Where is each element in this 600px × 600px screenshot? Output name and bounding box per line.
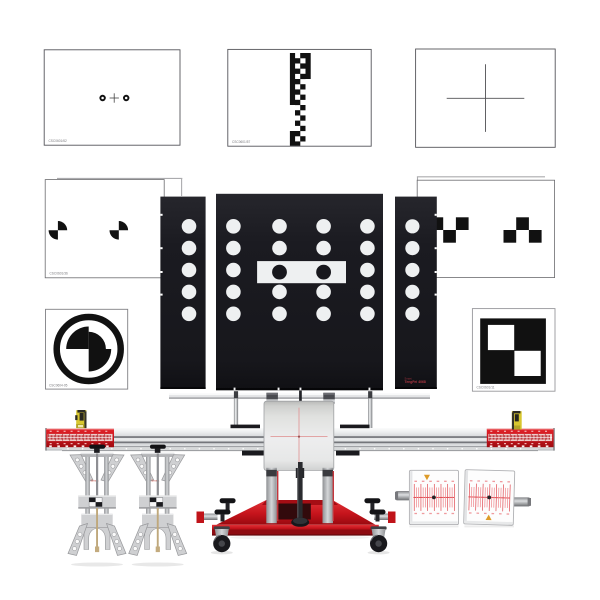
svg-text:CSC0601/57: CSC0601/57 (232, 140, 250, 144)
svg-text:TengFei 4068: TengFei 4068 (405, 380, 426, 384)
svg-text:CSC0601/11: CSC0601/11 (477, 385, 495, 389)
svg-text:CSC0601/62: CSC0601/62 (49, 139, 67, 143)
svg-text:CSC0604-05: CSC0604-05 (49, 384, 68, 388)
svg-text:CSC0601/36: CSC0601/36 (50, 272, 68, 276)
